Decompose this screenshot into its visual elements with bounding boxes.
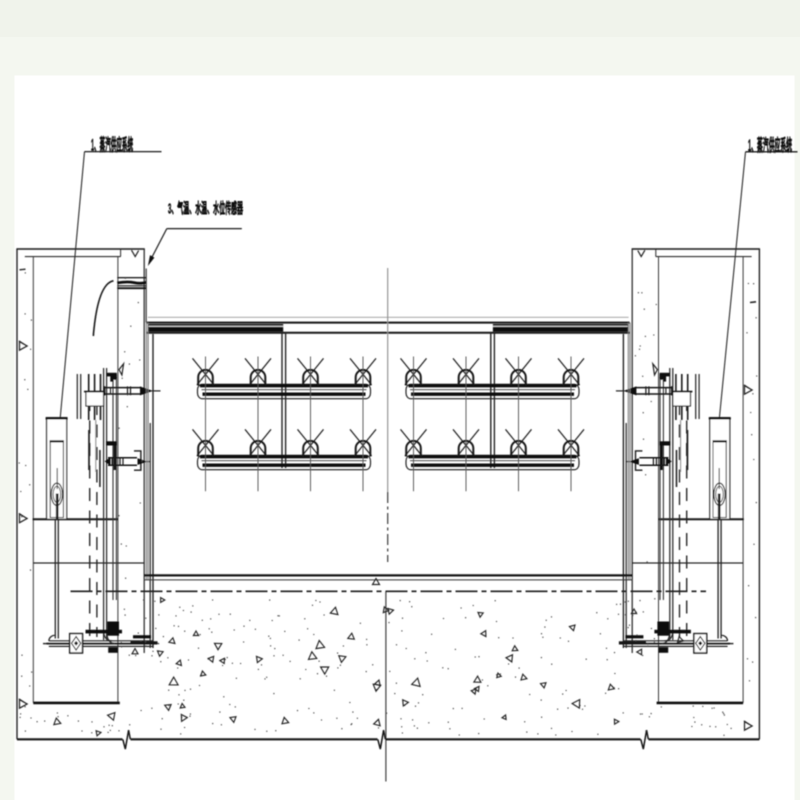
svg-text:3、气温、水温、水位传感器: 3、气温、水温、水位传感器 [168,200,243,218]
